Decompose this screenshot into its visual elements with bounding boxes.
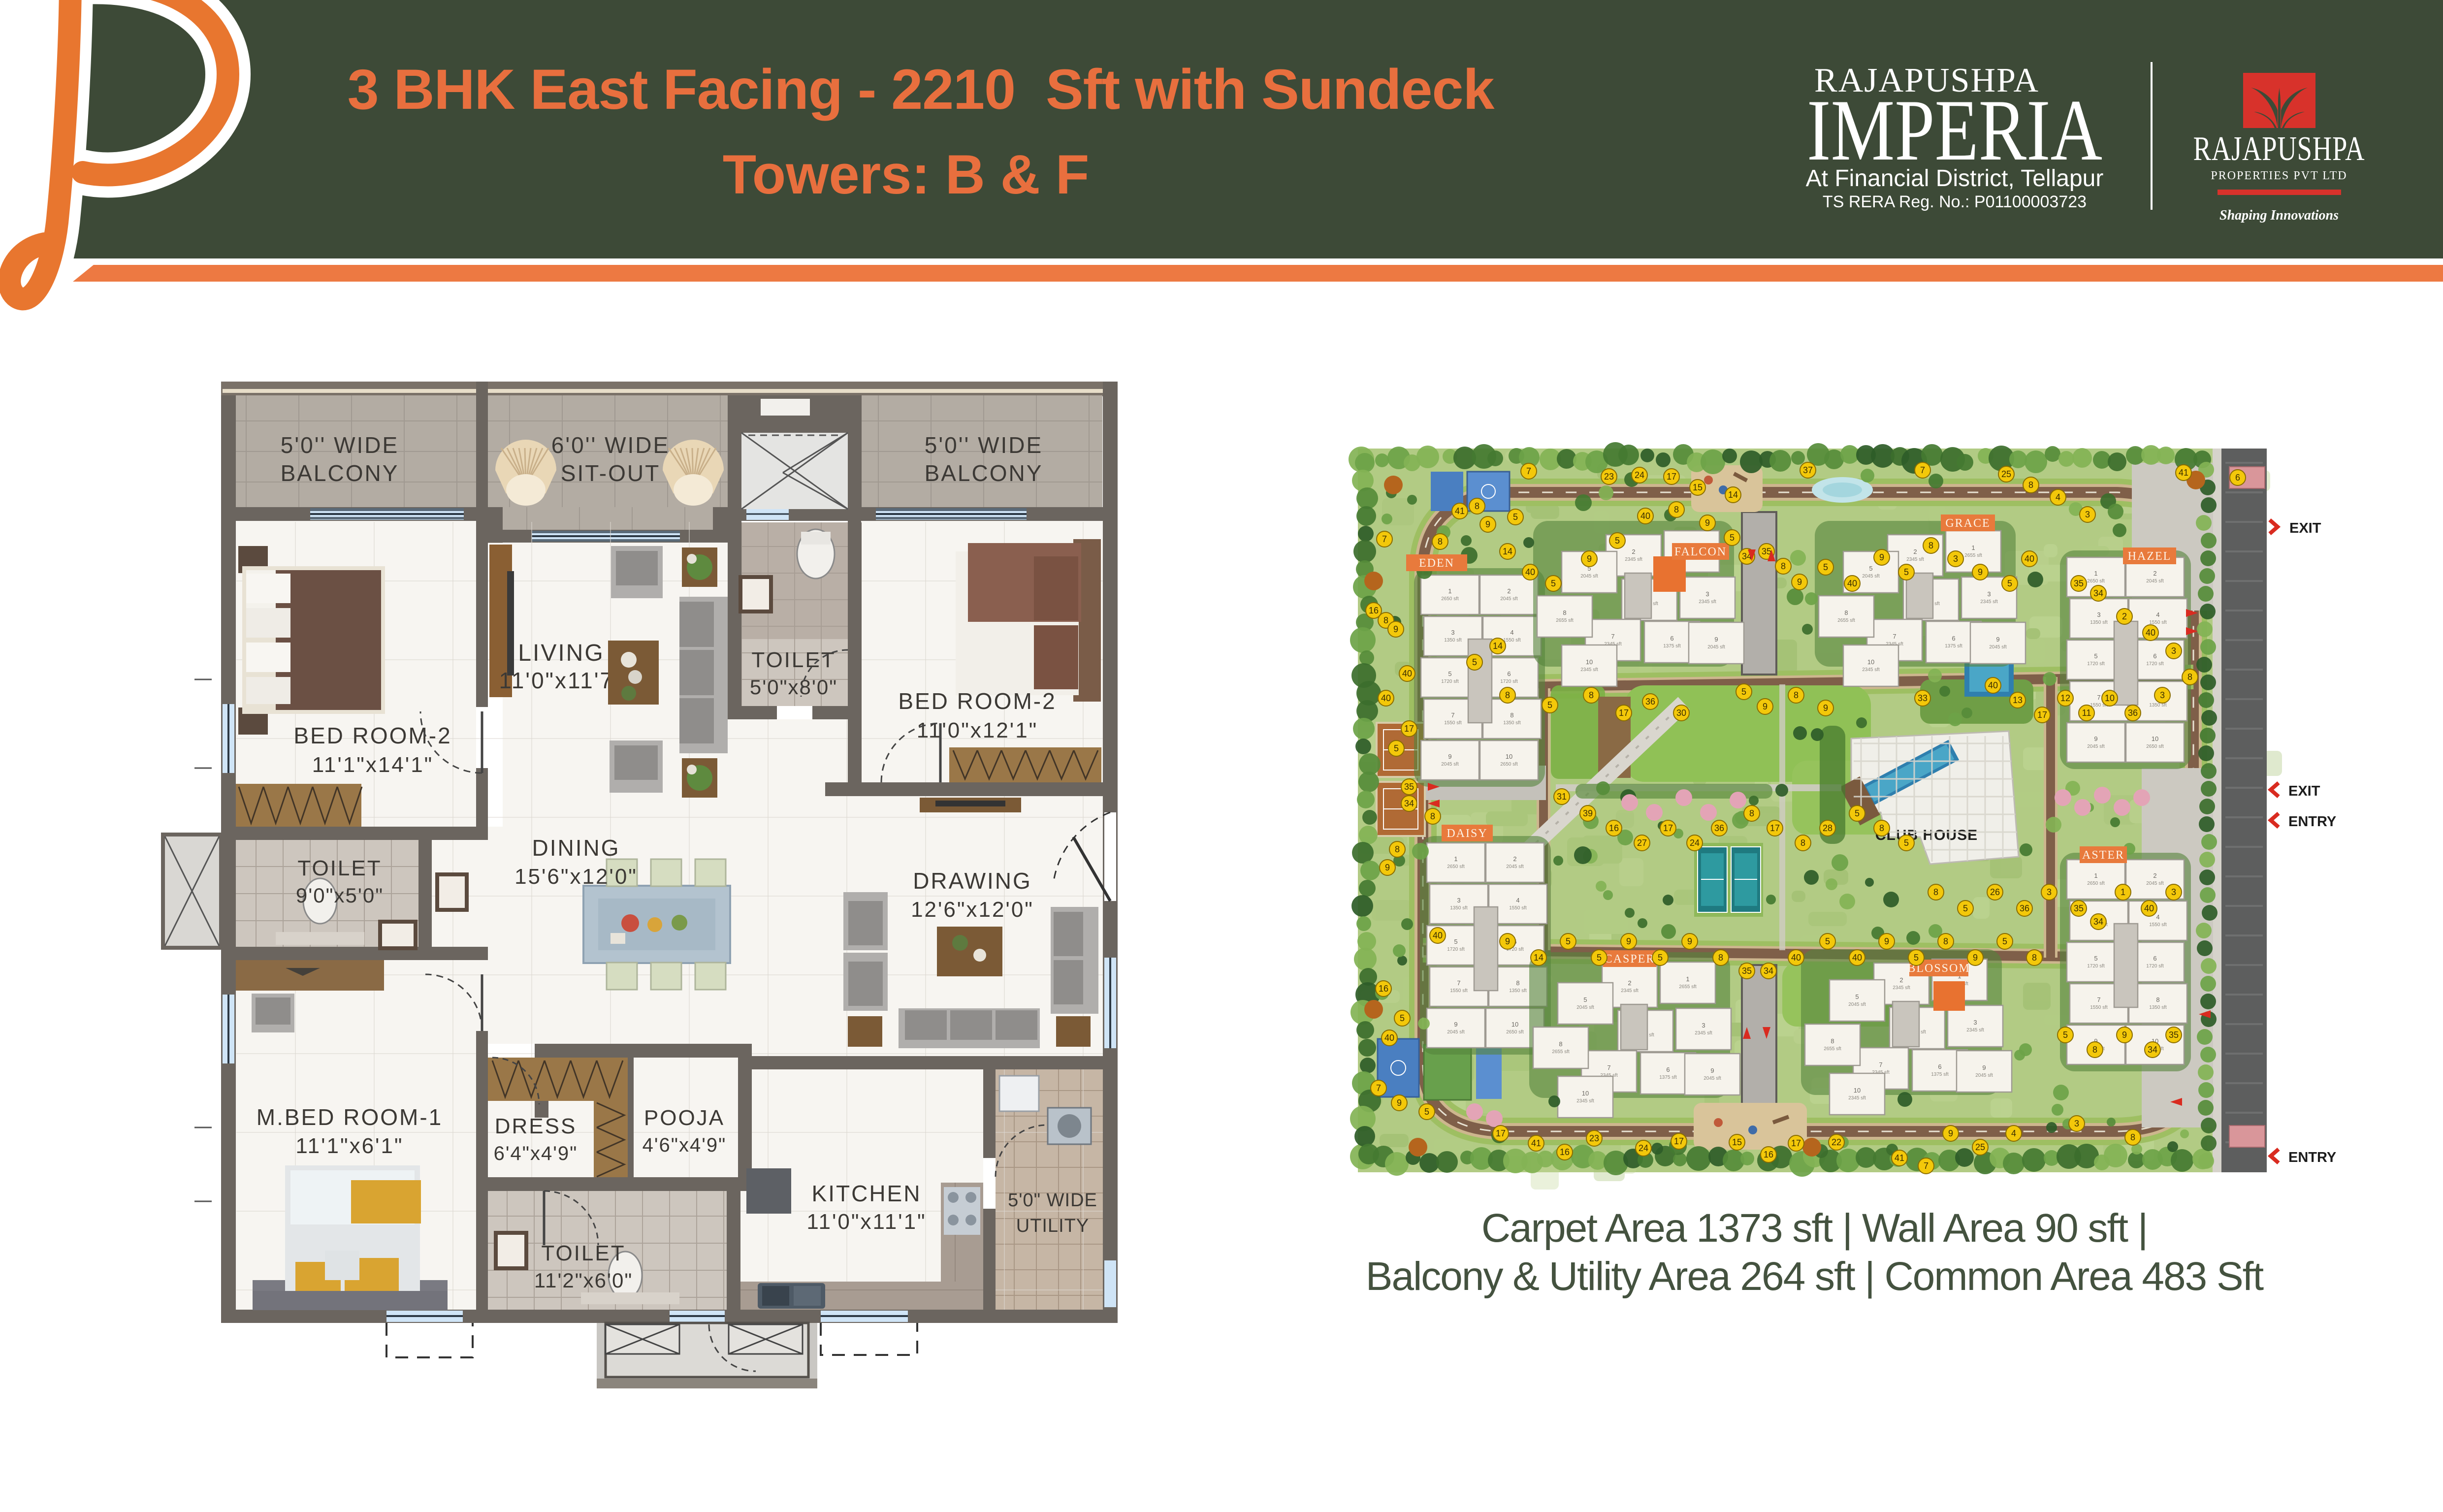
svg-text:9: 9	[1884, 936, 1889, 946]
svg-text:5: 5	[1741, 687, 1746, 697]
svg-text:9: 9	[1982, 1064, 1986, 1071]
svg-text:1: 1	[2094, 570, 2097, 577]
svg-text:EDEN: EDEN	[1419, 557, 1454, 570]
svg-text:41: 41	[1531, 1138, 1541, 1148]
svg-text:12'6"x12'0": 12'6"x12'0"	[911, 898, 1034, 922]
svg-text:17: 17	[2037, 710, 2047, 720]
svg-text:34: 34	[2148, 1045, 2157, 1055]
svg-text:30: 30	[1676, 708, 1686, 718]
svg-text:5: 5	[1825, 936, 1830, 946]
svg-text:3: 3	[1705, 590, 1709, 598]
svg-text:BED ROOM-2: BED ROOM-2	[898, 688, 1056, 714]
svg-text:1720 sft: 1720 sft	[1441, 679, 1459, 684]
svg-text:17: 17	[1619, 708, 1629, 718]
svg-text:2045 sft: 2045 sft	[1989, 644, 2007, 650]
svg-text:9: 9	[2122, 1030, 2127, 1040]
svg-text:2045 sft: 2045 sft	[1975, 1073, 1993, 1078]
svg-text:EXIT: EXIT	[2289, 520, 2321, 536]
svg-text:3: 3	[2085, 510, 2090, 519]
svg-text:10: 10	[1586, 658, 1593, 666]
svg-text:3: 3	[1973, 1019, 1977, 1026]
svg-text:28: 28	[1823, 823, 1832, 833]
svg-text:6: 6	[1938, 1063, 1941, 1070]
svg-text:KITCHEN: KITCHEN	[812, 1181, 922, 1206]
svg-text:40: 40	[1988, 680, 1998, 690]
svg-text:8: 8	[1749, 808, 1754, 818]
svg-text:3: 3	[1987, 590, 1991, 598]
svg-text:26: 26	[1990, 887, 2000, 897]
svg-text:4: 4	[2156, 913, 2159, 921]
svg-text:1350 sft: 1350 sft	[2149, 703, 2167, 708]
svg-text:9: 9	[1587, 554, 1592, 564]
svg-text:40: 40	[1847, 579, 1857, 588]
svg-text:14: 14	[1534, 953, 1543, 963]
svg-text:1720 sft: 1720 sft	[2087, 661, 2105, 667]
svg-text:8: 8	[1844, 609, 1848, 616]
svg-text:GRACE: GRACE	[1945, 517, 1990, 530]
svg-text:2045 sft: 2045 sft	[1704, 1076, 1721, 1081]
svg-text:9: 9	[1385, 863, 1390, 872]
svg-text:3: 3	[2074, 1119, 2079, 1128]
svg-text:8: 8	[1718, 953, 1723, 963]
svg-text:7: 7	[1920, 465, 1925, 475]
svg-text:6'4"x4'9": 6'4"x4'9"	[494, 1143, 578, 1164]
svg-text:2345 sft: 2345 sft	[1576, 1098, 1594, 1104]
svg-text:11'1"x6'1": 11'1"x6'1"	[295, 1134, 403, 1158]
svg-text:24: 24	[1639, 1143, 1648, 1153]
svg-text:33: 33	[1918, 693, 1928, 703]
svg-text:2650 sft: 2650 sft	[1447, 864, 1465, 869]
svg-text:4: 4	[2011, 1128, 2016, 1138]
svg-text:25: 25	[2001, 469, 2011, 479]
svg-text:17: 17	[1663, 823, 1673, 833]
svg-text:2045 sft: 2045 sft	[1862, 574, 1880, 579]
svg-text:1350 sft: 1350 sft	[2090, 620, 2108, 625]
svg-text:1: 1	[1448, 587, 1451, 595]
svg-text:5: 5	[1823, 562, 1828, 572]
svg-text:9'0"x5'0": 9'0"x5'0"	[296, 884, 384, 907]
svg-text:41: 41	[1895, 1153, 1904, 1163]
svg-text:DRESS: DRESS	[495, 1114, 577, 1138]
svg-text:9: 9	[1710, 1067, 1714, 1074]
svg-text:40: 40	[2025, 554, 2034, 564]
svg-text:6: 6	[1952, 635, 1955, 642]
svg-text:1: 1	[1971, 544, 1975, 551]
svg-text:7: 7	[1879, 1061, 1882, 1068]
svg-text:1720 sft: 1720 sft	[2146, 964, 2164, 969]
svg-text:2345 sft: 2345 sft	[1848, 1095, 1866, 1101]
svg-text:9: 9	[1879, 552, 1884, 562]
svg-text:5: 5	[2063, 1030, 2068, 1040]
svg-text:6: 6	[1507, 670, 1511, 677]
svg-text:35: 35	[2169, 1030, 2179, 1040]
svg-text:17: 17	[1791, 1138, 1801, 1148]
svg-text:9: 9	[1505, 936, 1510, 946]
svg-text:1550 sft: 1550 sft	[1450, 988, 1468, 994]
svg-text:34: 34	[2093, 588, 2103, 598]
svg-text:5: 5	[1454, 938, 1457, 945]
svg-text:8: 8	[1589, 690, 1594, 700]
svg-text:2345 sft: 2345 sft	[1695, 1030, 1712, 1036]
svg-text:2045 sft: 2045 sft	[2146, 579, 2164, 584]
svg-text:34: 34	[2093, 917, 2103, 927]
svg-text:TOILET: TOILET	[751, 648, 836, 672]
svg-text:1550 sft: 1550 sft	[2090, 1005, 2108, 1010]
svg-text:1350 sft: 1350 sft	[1503, 720, 1521, 726]
svg-text:2650 sft: 2650 sft	[2146, 744, 2164, 749]
svg-text:SIT-OUT: SIT-OUT	[561, 460, 660, 486]
svg-text:1720 sft: 1720 sft	[1447, 947, 1465, 952]
svg-text:1550 sft: 1550 sft	[1503, 638, 1521, 643]
svg-text:8: 8	[2156, 996, 2159, 1003]
svg-text:6: 6	[1666, 1066, 1670, 1073]
svg-text:9: 9	[1948, 1128, 1953, 1138]
svg-text:2655 sft: 2655 sft	[1556, 618, 1574, 623]
svg-text:8: 8	[1563, 609, 1566, 616]
svg-text:CASPER: CASPER	[1605, 953, 1655, 965]
svg-text:8: 8	[1516, 979, 1519, 987]
svg-text:1350 sft: 1350 sft	[1450, 905, 1468, 911]
svg-text:40: 40	[1402, 669, 1412, 678]
svg-text:1: 1	[2121, 887, 2125, 897]
svg-text:11'0"x12'1": 11'0"x12'1"	[917, 718, 1038, 742]
svg-text:5: 5	[1730, 533, 1735, 543]
svg-text:5: 5	[1566, 936, 1571, 946]
svg-text:9: 9	[1978, 567, 1983, 577]
svg-text:8: 8	[2187, 672, 2192, 682]
svg-text:2: 2	[1507, 587, 1511, 595]
svg-text:7: 7	[1607, 1064, 1610, 1071]
svg-text:EXIT: EXIT	[2288, 783, 2320, 799]
svg-text:7: 7	[1451, 711, 1454, 719]
svg-text:DINING: DINING	[532, 835, 620, 861]
svg-text:3: 3	[2171, 646, 2176, 656]
svg-text:2345 sft: 2345 sft	[1580, 667, 1598, 673]
svg-text:11'0"x11'7": 11'0"x11'7"	[499, 668, 624, 693]
svg-text:1: 1	[1686, 975, 1689, 983]
svg-text:2655 sft: 2655 sft	[1552, 1049, 1570, 1055]
svg-text:16: 16	[1369, 606, 1379, 615]
svg-text:8: 8	[2130, 1132, 2135, 1142]
svg-text:8: 8	[1929, 541, 1933, 550]
svg-text:2045 sft: 2045 sft	[1506, 864, 1524, 869]
svg-text:9: 9	[1454, 1021, 1457, 1028]
svg-text:16: 16	[1764, 1150, 1773, 1159]
svg-text:7: 7	[1924, 1161, 1929, 1171]
svg-text:2045 sft: 2045 sft	[1848, 1002, 1866, 1007]
svg-text:5: 5	[1394, 743, 1399, 753]
svg-text:2655 sft: 2655 sft	[1837, 618, 1855, 623]
svg-text:7: 7	[1611, 633, 1614, 640]
svg-text:3: 3	[1451, 629, 1454, 636]
svg-text:HAZEL: HAZEL	[2128, 550, 2172, 563]
svg-text:5: 5	[1658, 953, 1663, 963]
svg-text:8: 8	[1794, 690, 1799, 700]
svg-text:3: 3	[1702, 1022, 1705, 1029]
svg-text:6: 6	[2153, 652, 2156, 660]
svg-text:2650 sft: 2650 sft	[2087, 579, 2105, 584]
svg-text:34: 34	[1764, 966, 1773, 976]
svg-text:35: 35	[2074, 579, 2084, 588]
svg-text:10: 10	[1854, 1087, 1861, 1094]
svg-text:15'6"x12'0": 15'6"x12'0"	[514, 865, 638, 889]
svg-text:DRAWING: DRAWING	[913, 868, 1032, 894]
svg-text:8: 8	[1475, 501, 1479, 511]
svg-text:8: 8	[2092, 1045, 2097, 1055]
svg-text:7: 7	[2097, 996, 2100, 1003]
svg-text:17: 17	[1674, 1136, 1684, 1146]
svg-text:6: 6	[2153, 955, 2156, 962]
svg-text:7: 7	[1376, 1083, 1381, 1093]
svg-text:8: 8	[1879, 823, 1884, 833]
svg-text:14: 14	[1493, 641, 1503, 651]
svg-text:1550 sft: 1550 sft	[1444, 720, 1462, 726]
svg-text:35: 35	[1742, 966, 1752, 976]
svg-text:CLUB HOUSE: CLUB HOUSE	[1875, 827, 1978, 843]
svg-text:8: 8	[1383, 615, 1388, 625]
svg-text:5: 5	[1547, 700, 1552, 710]
svg-text:5: 5	[1472, 657, 1477, 667]
svg-text:9: 9	[1797, 577, 1802, 587]
svg-text:9: 9	[1626, 936, 1631, 946]
svg-text:2650 sft: 2650 sft	[1506, 1029, 1524, 1035]
svg-text:5: 5	[2002, 936, 2007, 946]
svg-text:2345 sft: 2345 sft	[1980, 599, 1998, 605]
svg-text:5: 5	[1400, 1013, 1405, 1023]
svg-text:8: 8	[1800, 838, 1805, 848]
svg-text:DAISY: DAISY	[1447, 827, 1487, 840]
svg-text:10: 10	[1511, 1021, 1518, 1028]
svg-text:9: 9	[1448, 753, 1451, 760]
svg-text:4: 4	[2056, 492, 2060, 502]
svg-text:27: 27	[1637, 838, 1647, 848]
svg-text:40: 40	[1640, 511, 1650, 521]
svg-text:5: 5	[1424, 1107, 1429, 1117]
svg-text:7: 7	[1457, 979, 1460, 987]
svg-text:1: 1	[1454, 855, 1457, 863]
svg-text:40: 40	[1384, 1033, 1394, 1043]
svg-text:36: 36	[1714, 823, 1724, 833]
svg-text:16: 16	[1379, 984, 1388, 994]
svg-text:2045 sft: 2045 sft	[1707, 644, 1725, 650]
svg-text:3: 3	[2047, 887, 2052, 897]
svg-text:36: 36	[1645, 697, 1655, 707]
svg-text:7: 7	[1382, 534, 1387, 544]
svg-text:1375 sft: 1375 sft	[1659, 1075, 1677, 1080]
svg-text:1375 sft: 1375 sft	[1945, 643, 1962, 649]
svg-text:2345 sft: 2345 sft	[1906, 557, 1924, 562]
svg-text:15: 15	[1693, 483, 1703, 492]
svg-text:4: 4	[2156, 611, 2159, 618]
svg-text:35: 35	[2074, 903, 2084, 913]
svg-text:3: 3	[2097, 611, 2100, 618]
svg-text:40: 40	[1791, 953, 1801, 963]
svg-text:2650 sft: 2650 sft	[1441, 596, 1459, 602]
svg-text:2045 sft: 2045 sft	[2087, 744, 2105, 749]
svg-text:BED ROOM-2: BED ROOM-2	[293, 723, 451, 748]
svg-text:5: 5	[1513, 512, 1518, 522]
svg-text:1: 1	[2094, 872, 2097, 879]
svg-text:5: 5	[2007, 579, 2012, 588]
svg-text:23: 23	[1604, 472, 1614, 482]
svg-text:5: 5	[1904, 838, 1909, 848]
svg-text:36: 36	[2020, 903, 2029, 913]
svg-text:1350 sft: 1350 sft	[1509, 988, 1527, 994]
svg-text:9: 9	[1393, 624, 1398, 634]
svg-text:9: 9	[1996, 636, 1999, 643]
svg-text:8: 8	[1510, 711, 1513, 719]
svg-text:5: 5	[1963, 903, 1968, 913]
svg-text:9: 9	[1397, 1098, 1402, 1108]
svg-text:14: 14	[1503, 547, 1512, 556]
svg-text:8: 8	[1505, 690, 1510, 700]
svg-text:5: 5	[1448, 670, 1451, 677]
svg-text:5: 5	[1597, 953, 1602, 963]
svg-text:5: 5	[2094, 955, 2097, 962]
svg-text:25: 25	[1975, 1142, 1985, 1152]
svg-text:5: 5	[1869, 565, 1872, 572]
svg-text:5: 5	[1904, 567, 1909, 577]
svg-text:5: 5	[1914, 953, 1919, 963]
svg-text:12: 12	[2060, 693, 2070, 703]
svg-text:9: 9	[1763, 702, 1768, 711]
svg-text:4: 4	[1510, 629, 1513, 636]
svg-text:13: 13	[2013, 695, 2023, 705]
svg-text:1720 sft: 1720 sft	[2146, 661, 2164, 667]
svg-text:M.BED ROOM-1: M.BED ROOM-1	[257, 1104, 443, 1130]
svg-text:15: 15	[1732, 1137, 1742, 1147]
svg-text:2345 sft: 2345 sft	[1621, 988, 1639, 994]
svg-text:10: 10	[1867, 658, 1874, 666]
svg-text:4: 4	[1516, 897, 1519, 904]
svg-text:5'0" WIDE: 5'0" WIDE	[1008, 1190, 1097, 1211]
svg-text:34: 34	[1404, 799, 1414, 808]
svg-text:5: 5	[1583, 996, 1587, 1003]
svg-text:5'0'' WIDE: 5'0'' WIDE	[925, 432, 1043, 458]
svg-text:POOJA: POOJA	[644, 1106, 725, 1130]
svg-text:3: 3	[1457, 897, 1460, 904]
svg-text:39: 39	[1583, 808, 1593, 818]
svg-text:24: 24	[1690, 838, 1700, 848]
svg-text:8: 8	[1674, 505, 1679, 515]
svg-text:2655 sft: 2655 sft	[1679, 984, 1697, 990]
svg-text:2: 2	[1913, 548, 1917, 555]
svg-text:6'0'' WIDE: 6'0'' WIDE	[551, 432, 670, 458]
svg-text:2: 2	[1899, 976, 1903, 984]
svg-text:40: 40	[1433, 931, 1443, 940]
svg-text:2: 2	[2153, 570, 2156, 577]
svg-text:ASTER: ASTER	[2082, 849, 2124, 862]
svg-text:2650 sft: 2650 sft	[2087, 881, 2105, 886]
svg-text:2: 2	[2153, 872, 2156, 879]
svg-text:37: 37	[1803, 465, 1813, 475]
svg-text:2045 sft: 2045 sft	[1580, 574, 1598, 579]
svg-text:23: 23	[1589, 1133, 1599, 1143]
svg-text:11'1"x14'1": 11'1"x14'1"	[312, 753, 434, 777]
svg-text:2345 sft: 2345 sft	[1966, 1028, 1984, 1033]
svg-text:11'0"x11'1": 11'0"x11'1"	[806, 1210, 926, 1234]
svg-text:40: 40	[1852, 953, 1862, 963]
svg-text:41: 41	[1455, 506, 1465, 516]
svg-text:5: 5	[1615, 536, 1620, 546]
svg-text:2345 sft: 2345 sft	[1862, 667, 1880, 673]
svg-text:11: 11	[2082, 708, 2091, 718]
svg-text:36: 36	[2128, 708, 2138, 718]
svg-text:40: 40	[2146, 628, 2155, 638]
svg-text:9: 9	[1973, 953, 1978, 963]
svg-text:1550 sft: 1550 sft	[2149, 922, 2167, 928]
svg-text:22: 22	[1832, 1137, 1841, 1147]
svg-text:2345 sft: 2345 sft	[1625, 557, 1642, 562]
svg-text:2345 sft: 2345 sft	[1699, 599, 1716, 605]
svg-text:8: 8	[2028, 480, 2033, 490]
svg-text:7: 7	[1526, 466, 1531, 476]
svg-text:3: 3	[1953, 554, 1958, 564]
svg-text:6: 6	[1670, 635, 1673, 642]
svg-text:17: 17	[1496, 1128, 1506, 1138]
svg-text:8: 8	[1438, 537, 1443, 547]
svg-text:1375 sft: 1375 sft	[1931, 1072, 1949, 1077]
svg-text:3: 3	[2171, 887, 2176, 897]
svg-text:40: 40	[2144, 903, 2154, 913]
svg-text:2045 sft: 2045 sft	[1500, 596, 1518, 602]
svg-text:10: 10	[2105, 693, 2115, 703]
svg-text:2045 sft: 2045 sft	[1441, 762, 1459, 767]
svg-text:3: 3	[2160, 690, 2165, 700]
svg-text:9: 9	[1687, 936, 1692, 946]
svg-text:16: 16	[1609, 823, 1619, 833]
svg-text:1350 sft: 1350 sft	[1444, 638, 1462, 643]
svg-text:17: 17	[1404, 724, 1414, 734]
svg-text:31: 31	[1557, 792, 1567, 802]
svg-text:8: 8	[2032, 953, 2037, 963]
svg-text:17: 17	[1770, 823, 1780, 833]
svg-text:FALCON: FALCON	[1674, 546, 1727, 558]
svg-text:BALCONY: BALCONY	[925, 460, 1043, 486]
svg-text:2: 2	[1628, 979, 1631, 987]
svg-text:2: 2	[2122, 611, 2127, 621]
svg-text:2655 sft: 2655 sft	[1964, 553, 1982, 558]
svg-text:2045 sft: 2045 sft	[2146, 881, 2164, 886]
svg-text:17: 17	[1667, 472, 1676, 482]
svg-text:41: 41	[2179, 468, 2188, 478]
svg-text:9: 9	[1714, 636, 1718, 643]
svg-text:6: 6	[2235, 473, 2240, 483]
svg-text:2: 2	[1513, 855, 1516, 863]
svg-text:8: 8	[1781, 561, 1786, 571]
svg-text:8: 8	[1831, 1037, 1834, 1045]
svg-text:2: 2	[1632, 548, 1635, 555]
svg-text:9: 9	[1823, 703, 1828, 713]
svg-text:TOILET: TOILET	[297, 856, 382, 880]
svg-text:ENTRY: ENTRY	[2288, 814, 2336, 830]
svg-text:2045 sft: 2045 sft	[1576, 1005, 1594, 1010]
svg-text:UTILITY: UTILITY	[1016, 1216, 1089, 1236]
svg-text:9: 9	[2094, 735, 2097, 742]
svg-text:10: 10	[1506, 753, 1512, 760]
svg-text:2650 sft: 2650 sft	[1500, 762, 1518, 767]
svg-text:9: 9	[1705, 518, 1710, 528]
svg-text:11'2"x6'0": 11'2"x6'0"	[534, 1269, 633, 1292]
svg-text:8: 8	[1933, 887, 1938, 897]
svg-text:ENTRY: ENTRY	[2288, 1150, 2336, 1165]
svg-text:LIVING: LIVING	[518, 640, 604, 666]
svg-text:5: 5	[1855, 808, 1860, 818]
svg-text:5: 5	[1551, 579, 1556, 588]
svg-text:BALCONY: BALCONY	[281, 460, 399, 486]
svg-text:7: 7	[2097, 694, 2100, 701]
svg-text:1720 sft: 1720 sft	[2087, 964, 2105, 969]
